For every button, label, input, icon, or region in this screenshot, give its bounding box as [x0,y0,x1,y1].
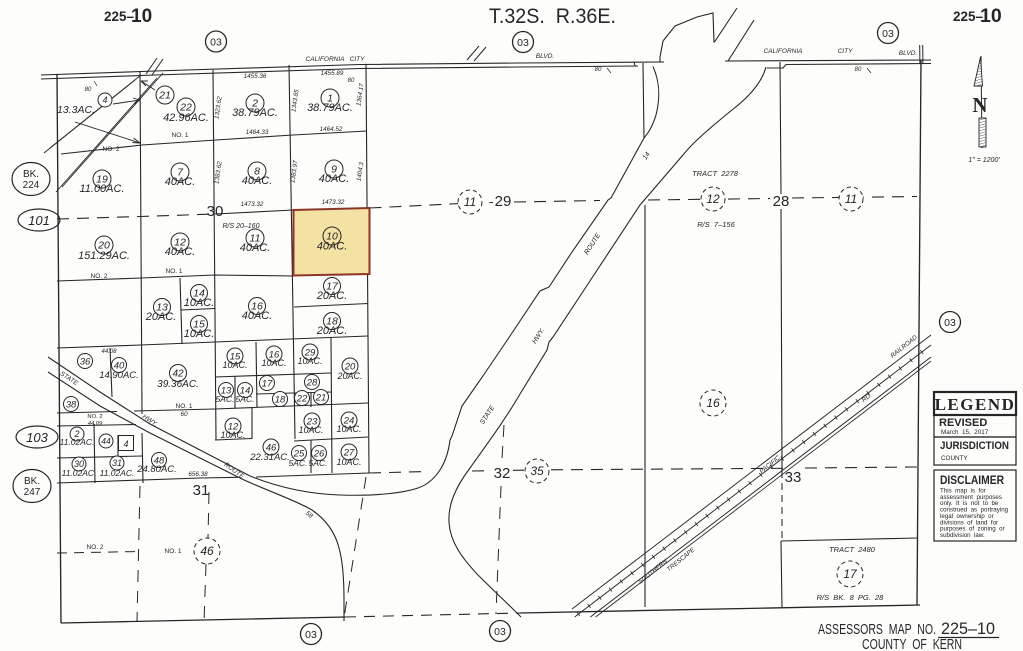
svg-text:22.31AC.: 22.31AC. [249,452,290,463]
svg-text:JURISDICTION: JURISDICTION [940,440,1009,452]
svg-text:21: 21 [315,392,327,403]
svg-text:03: 03 [517,37,529,49]
svg-text:1″ = 1200′: 1″ = 1200′ [968,157,1000,164]
svg-text:44: 44 [101,436,111,446]
svg-text:44.08: 44.08 [101,349,117,355]
svg-text:80: 80 [855,67,862,73]
svg-text:1455.89: 1455.89 [321,70,344,77]
svg-text:1455.36: 1455.36 [244,73,267,80]
svg-text:10: 10 [980,5,1002,27]
svg-text:33: 33 [785,469,802,486]
svg-text:BLVD.: BLVD. [899,50,918,57]
svg-text:225–10: 225–10 [941,620,995,638]
svg-text:11.02AC.: 11.02AC. [100,468,135,478]
svg-text:11.02AC.: 11.02AC. [62,468,97,478]
svg-text:28: 28 [773,193,790,210]
svg-text:5AC.: 5AC. [289,458,308,468]
svg-text:44.09: 44.09 [88,421,103,427]
svg-text:R/S BK. 8 PG. 28: R/S BK. 8 PG. 28 [817,593,885,602]
svg-text:80: 80 [595,67,602,73]
svg-text:20AC.: 20AC. [316,325,348,337]
svg-text:40AC.: 40AC. [165,246,196,258]
svg-text:BK.: BK. [23,169,39,180]
svg-text:03: 03 [305,629,317,641]
svg-text:1473.32: 1473.32 [322,199,345,206]
svg-text:42.96AC.: 42.96AC. [163,112,209,124]
svg-text:CALIFORNIA CITY: CALIFORNIA CITY [306,56,366,63]
svg-text:03: 03 [494,626,506,638]
svg-text:BLVD.: BLVD. [536,53,555,60]
svg-text:13.3AC.: 13.3AC. [57,104,95,116]
svg-text:14.90AC.: 14.90AC. [99,370,139,381]
svg-text:40AC.: 40AC. [240,242,271,254]
svg-text:31: 31 [112,458,122,468]
svg-text:60: 60 [180,411,188,418]
svg-text:225–: 225– [104,9,135,24]
svg-text:31: 31 [193,482,210,499]
svg-text:March 15, 2017: March 15, 2017 [941,429,989,436]
svg-text:22: 22 [296,393,308,404]
svg-text:29: 29 [495,193,512,210]
svg-text:subdivision law.: subdivision law. [940,532,985,539]
svg-text:16: 16 [706,396,720,410]
svg-text:28: 28 [306,377,318,388]
svg-text:20AC.: 20AC. [316,290,348,302]
svg-text:11: 11 [464,195,476,209]
svg-text:225–: 225– [953,9,984,24]
svg-text:1473.32: 1473.32 [241,201,264,208]
svg-text:40AC.: 40AC. [165,176,196,188]
svg-text:11: 11 [845,192,857,206]
svg-text:1464.52: 1464.52 [320,126,343,133]
svg-text:R/S 7–156: R/S 7–156 [697,220,735,229]
svg-text:N: N [972,93,987,117]
svg-text:46: 46 [200,544,214,558]
svg-text:247: 247 [24,487,41,498]
svg-text:NO. 2: NO. 2 [91,273,108,280]
svg-text:NO. 1: NO. 1 [176,403,193,410]
svg-text:10: 10 [131,6,152,27]
svg-text:17: 17 [843,567,858,581]
svg-text:42: 42 [172,369,184,380]
svg-text:40AC.: 40AC. [242,310,273,322]
svg-text:36: 36 [80,356,91,367]
svg-text:21: 21 [158,90,171,102]
svg-text:10AC.: 10AC. [336,457,361,467]
svg-text:20AC.: 20AC. [336,371,362,381]
svg-text:24.80AC.: 24.80AC. [136,464,177,475]
svg-text:656.38: 656.38 [188,471,208,478]
svg-text:10AC.: 10AC. [220,430,245,440]
svg-text:CALIFORNIA: CALIFORNIA [763,48,802,55]
svg-text:5AC.: 5AC. [236,394,255,404]
svg-text:10AC.: 10AC. [184,297,215,309]
svg-text:10AC.: 10AC. [222,360,247,370]
svg-text:80: 80 [348,78,355,84]
svg-text:17: 17 [262,378,273,389]
svg-text:03: 03 [944,317,956,329]
svg-text:4: 4 [102,95,107,105]
svg-text:40AC.: 40AC. [319,173,350,185]
svg-text:10AC.: 10AC. [298,425,323,435]
svg-text:REVISED: REVISED [939,417,987,429]
svg-text:NO. 2: NO. 2 [87,544,104,551]
svg-text:10AC.: 10AC. [336,424,361,434]
svg-text:35: 35 [530,464,544,478]
svg-text:12: 12 [706,192,720,206]
svg-text:4: 4 [123,439,128,449]
svg-text:10AC.: 10AC. [184,328,215,340]
svg-text:38: 38 [66,399,77,410]
svg-text:11.02AC.: 11.02AC. [60,437,95,447]
svg-text:BK.: BK. [24,476,40,487]
svg-text:1464.33: 1464.33 [246,129,269,136]
svg-text:NO. 1: NO. 1 [166,268,183,275]
svg-text:COUNTY: COUNTY [941,455,968,462]
svg-text:39.36AC.: 39.36AC. [157,379,199,390]
svg-text:5AC.: 5AC. [216,394,235,404]
svg-text:NO. 1: NO. 1 [165,548,182,555]
svg-text:38.79AC.: 38.79AC. [307,102,353,114]
svg-text:18: 18 [275,394,286,405]
svg-text:20AC.: 20AC. [145,311,177,323]
svg-text:03: 03 [210,37,222,49]
svg-text:DISCLAIMER: DISCLAIMER [940,473,1004,487]
svg-text:224: 224 [23,180,40,191]
svg-text:101: 101 [28,213,50,228]
svg-text:ASSESSORS MAP NO.: ASSESSORS MAP NO. [818,622,936,638]
svg-text:TRACT 2480: TRACT 2480 [829,545,876,554]
svg-text:151.29AC.: 151.29AC. [78,250,130,262]
svg-text:30: 30 [207,203,224,220]
svg-text:TRACT 2278: TRACT 2278 [692,169,739,178]
svg-text:COUNTY OF KERN: COUNTY OF KERN [862,637,962,651]
svg-text:10AC.: 10AC. [261,358,286,368]
svg-text:03: 03 [882,28,894,40]
svg-text:40AC.: 40AC. [317,241,348,253]
svg-text:T.32S. R.36E.: T.32S. R.36E. [489,5,616,28]
svg-text:10AC.: 10AC. [297,356,322,366]
svg-text:38.79AC.: 38.79AC. [232,107,278,119]
svg-text:103: 103 [26,430,48,445]
svg-text:NO. 2: NO. 2 [103,146,120,153]
svg-text:11.00AC.: 11.00AC. [79,183,124,195]
svg-text:NO. 1: NO. 1 [172,132,189,139]
svg-text:NO. 2: NO. 2 [87,414,102,420]
svg-text:80: 80 [85,87,92,93]
svg-text:40AC.: 40AC. [242,175,273,187]
svg-text:LEGEND: LEGEND [935,395,1016,414]
svg-text:32: 32 [494,465,511,482]
svg-text:5AC.: 5AC. [309,458,328,468]
svg-text:CITY: CITY [838,48,853,55]
